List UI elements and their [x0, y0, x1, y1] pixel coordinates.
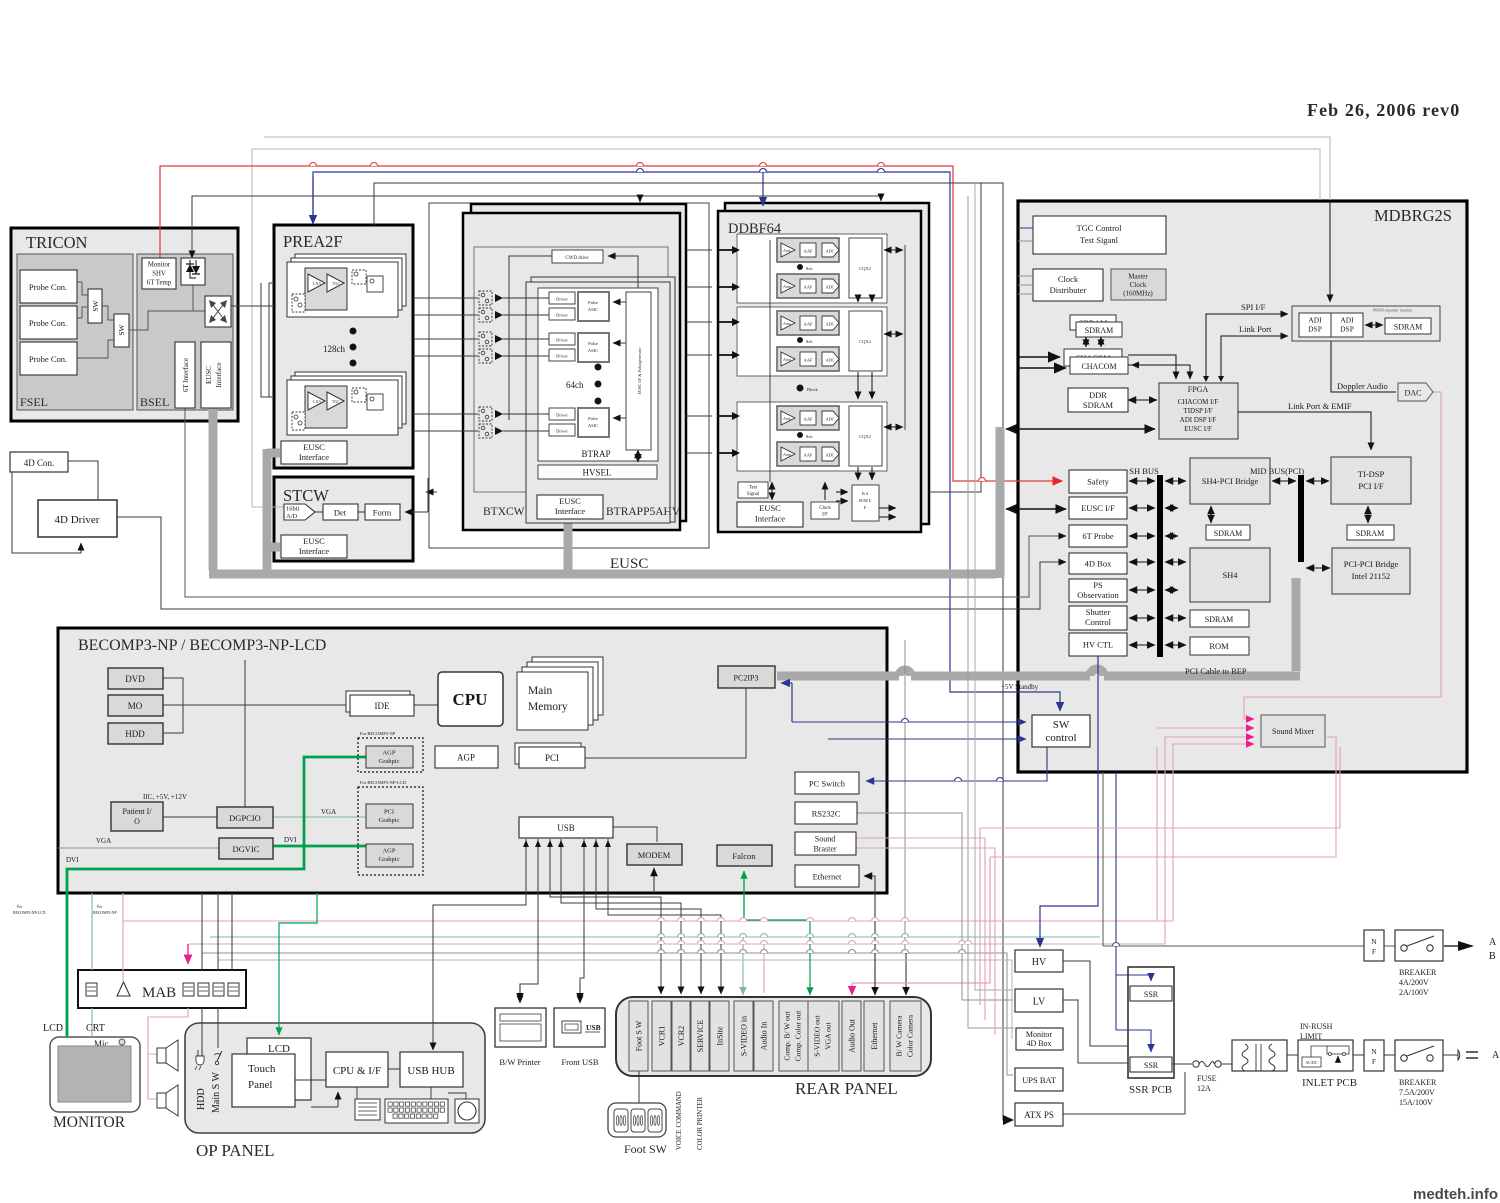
svg-text:AGP: AGP [382, 750, 395, 757]
svg-text:Monitor: Monitor [148, 262, 171, 269]
svg-text:DVI: DVI [66, 856, 79, 864]
svg-text:DGPCIO: DGPCIO [229, 813, 261, 823]
svg-text:Clock: Clock [1058, 274, 1079, 284]
svg-text:A: A [1492, 1050, 1500, 1061]
svg-text:Driver: Driver [556, 413, 568, 418]
svg-text:Test: Test [749, 486, 758, 491]
svg-text:4D Box: 4D Box [1026, 1039, 1051, 1048]
svg-text:Panel: Panel [248, 1079, 272, 1091]
svg-text:LNA: LNA [313, 281, 321, 286]
svg-text:IDE: IDE [375, 701, 390, 711]
svg-text:Link Port: Link Port [1239, 324, 1272, 334]
svg-text:UPS BAT: UPS BAT [1022, 1075, 1057, 1085]
svg-text:SSR PCB: SSR PCB [1129, 1084, 1172, 1096]
svg-text:Interface: Interface [215, 363, 223, 388]
svg-text:BREAKER: BREAKER [1399, 968, 1437, 977]
svg-text:For BECOMP3-NP: For BECOMP3-NP [360, 731, 396, 736]
svg-text:EUSC: EUSC [559, 496, 581, 506]
svg-text:COLOR PRINTER: COLOR PRINTER [697, 1096, 704, 1150]
svg-text:AC/DC: AC/DC [1305, 1060, 1318, 1065]
svg-text:A/D: A/D [286, 513, 298, 520]
svg-text:BECOMP3-NP-LCD: BECOMP3-NP-LCD [13, 911, 46, 915]
svg-text:PCI Cable to BEP: PCI Cable to BEP [1185, 666, 1247, 676]
svg-text:PCI: PCI [545, 753, 559, 763]
svg-text:+5V Standby: +5V Standby [1001, 683, 1039, 691]
svg-text:Doppler Audio: Doppler Audio [1337, 381, 1388, 391]
svg-text:PCI I/F: PCI I/F [1358, 481, 1384, 491]
svg-text:AAF: AAF [803, 285, 812, 290]
svg-text:6T Interface: 6T Interface [182, 358, 190, 392]
svg-text:EUSC: EUSC [303, 536, 325, 546]
svg-text:Clock: Clock [1130, 281, 1147, 289]
svg-text:VGA: VGA [96, 837, 111, 845]
svg-text:MID BUS(PCI): MID BUS(PCI) [1250, 466, 1304, 476]
svg-text:TRICON: TRICON [26, 233, 88, 252]
svg-text:Monitor: Monitor [1026, 1030, 1053, 1039]
svg-text:LCD: LCD [43, 1023, 63, 1034]
svg-text:PREA2F: PREA2F [283, 232, 343, 251]
svg-text:N: N [1371, 937, 1377, 946]
svg-text:TGC: TGC [332, 399, 340, 404]
svg-text:medteh.info: medteh.info [1413, 1186, 1498, 1203]
svg-text:PS: PS [1093, 580, 1103, 590]
svg-text:Probe Con.: Probe Con. [29, 318, 67, 328]
svg-text:Audio Out: Audio Out [848, 1018, 857, 1053]
svg-text:PC2IP3: PC2IP3 [734, 674, 759, 683]
svg-text:Driver: Driver [556, 297, 568, 302]
svg-text:Driver: Driver [556, 429, 568, 434]
svg-text:Pulse: Pulse [588, 341, 598, 346]
svg-text:EUSC: EUSC [205, 366, 213, 384]
svg-text:PCI: PCI [384, 809, 394, 816]
svg-text:64ch: 64ch [566, 380, 584, 390]
svg-text:Touch: Touch [248, 1063, 276, 1075]
svg-text:Main: Main [528, 685, 553, 697]
svg-text:SDRAM: SDRAM [1085, 326, 1113, 335]
svg-text:ATX PS: ATX PS [1024, 1110, 1054, 1120]
svg-text:Interface: Interface [755, 514, 785, 524]
svg-text:BECOMP3-NP: BECOMP3-NP [93, 911, 117, 915]
svg-text:CQX2: CQX2 [859, 434, 871, 439]
svg-text:ROM: ROM [1209, 641, 1229, 651]
svg-text:4A/200V: 4A/200V [1399, 978, 1429, 987]
svg-text:DAC: DAC [1405, 389, 1422, 398]
svg-text:SPI I/F: SPI I/F [1241, 302, 1266, 312]
svg-text:FUSE: FUSE [1197, 1074, 1217, 1083]
svg-text:Amp: Amp [783, 358, 791, 362]
svg-text:SW: SW [91, 299, 100, 311]
svg-text:Amp: Amp [783, 417, 791, 421]
svg-text:O: O [134, 817, 140, 826]
svg-text:Pulse: Pulse [588, 416, 598, 421]
svg-text:Ethernet: Ethernet [870, 1022, 879, 1050]
svg-text:USB HUB: USB HUB [407, 1065, 454, 1077]
svg-text:CRT: CRT [86, 1023, 105, 1034]
svg-text:MO: MO [128, 701, 143, 711]
svg-text:FPGA: FPGA [1188, 385, 1209, 394]
svg-text:EUSC: EUSC [303, 442, 325, 452]
svg-text:PCI-PCI Bridge: PCI-PCI Bridge [1344, 559, 1399, 569]
svg-text:DVD: DVD [125, 674, 145, 684]
svg-text:SH4: SH4 [1222, 570, 1238, 580]
svg-text:ADC: ADC [826, 453, 835, 458]
svg-text:Driver: Driver [556, 338, 568, 343]
svg-text:BTXCW: BTXCW [483, 506, 525, 518]
svg-text:CQX2: CQX2 [859, 339, 871, 344]
svg-text:SERVICE: SERVICE [696, 1020, 705, 1053]
svg-text:Grahpic: Grahpic [379, 856, 400, 863]
svg-text:AAF: AAF [803, 249, 812, 254]
svg-text:Ethernet: Ethernet [813, 872, 842, 882]
svg-text:EUSC I/F: EUSC I/F [1081, 503, 1115, 513]
svg-text:Foot SW: Foot SW [624, 1142, 668, 1156]
svg-text:Grahpic: Grahpic [379, 758, 400, 765]
svg-text:LCD: LCD [268, 1043, 290, 1055]
svg-text:CPU & I/F: CPU & I/F [333, 1065, 381, 1077]
svg-text:MONITOR: MONITOR [53, 1114, 126, 1131]
svg-text:Pulse: Pulse [588, 300, 598, 305]
svg-text:Probe Con.: Probe Con. [29, 282, 67, 292]
svg-text:CHACOM: CHACOM [1081, 362, 1116, 371]
svg-text:CPU: CPU [453, 690, 488, 709]
svg-text:USB: USB [586, 1023, 601, 1032]
svg-text:AGP: AGP [457, 753, 475, 763]
svg-text:OP PANEL: OP PANEL [196, 1141, 275, 1160]
svg-text:Observation: Observation [1077, 590, 1119, 600]
svg-text:Foot S W: Foot S W [635, 1020, 644, 1051]
svg-text:DDR: DDR [1089, 390, 1107, 400]
svg-text:DGVIC: DGVIC [233, 844, 260, 854]
svg-text:HVSEL: HVSEL [583, 468, 612, 478]
svg-text:Color Camera: Color Camera [906, 1014, 915, 1057]
svg-text:SDRAM: SDRAM [1214, 529, 1242, 538]
svg-text:128ch: 128ch [323, 344, 345, 354]
svg-text:VGA: VGA [321, 808, 336, 816]
svg-text:ASIC: ASIC [588, 423, 598, 428]
svg-text:DSP: DSP [1340, 325, 1354, 334]
svg-text:VOICE COMMAND: VOICE COMMAND [676, 1091, 683, 1150]
svg-text:IN-RUSH: IN-RUSH [1300, 1022, 1333, 1031]
svg-text:Front USB: Front USB [561, 1057, 598, 1067]
svg-text:ADI: ADI [1340, 316, 1354, 325]
svg-text:EUSC: EUSC [610, 556, 648, 572]
svg-text:LV: LV [1033, 997, 1046, 1008]
svg-text:16bit: 16bit [286, 506, 300, 513]
svg-text:DSP: DSP [1308, 325, 1322, 334]
svg-text:VCR2: VCR2 [677, 1026, 686, 1046]
svg-text:Feb 26, 2006 rev0: Feb 26, 2006 rev0 [1307, 100, 1460, 120]
svg-text:Signal: Signal [747, 492, 760, 497]
svg-text:Sound Mixer: Sound Mixer [1272, 727, 1314, 736]
svg-text:Amp: Amp [783, 322, 791, 326]
svg-text:S-VIDEO in: S-VIDEO in [740, 1016, 749, 1056]
svg-text:Det: Det [334, 508, 347, 518]
svg-text:ASIC: ASIC [588, 348, 598, 353]
svg-text:DVI: DVI [284, 836, 297, 844]
svg-text:Control: Control [1085, 617, 1112, 627]
svg-text:Amp: Amp [783, 285, 791, 289]
svg-text:CHACOM I/F: CHACOM I/F [1178, 398, 1219, 406]
svg-text:SH4-PCI Bridge: SH4-PCI Bridge [1202, 476, 1259, 486]
svg-text:SW: SW [1053, 719, 1070, 731]
svg-text:B/W Printer: B/W Printer [499, 1057, 540, 1067]
svg-text:Memory: Memory [528, 701, 568, 713]
svg-text:For BECOMP3-NP-LCD: For BECOMP3-NP-LCD [360, 780, 407, 785]
svg-text:AAF: AAF [803, 417, 812, 422]
svg-text:F: F [1372, 947, 1376, 956]
svg-text:BTRAPP5AHV: BTRAPP5AHV [606, 506, 681, 518]
svg-text:SSR: SSR [1144, 990, 1159, 999]
svg-text:Block: Block [807, 387, 818, 392]
svg-text:CWD drive: CWD drive [565, 256, 589, 261]
svg-text:PC Switch: PC Switch [809, 779, 846, 789]
svg-text:Falcon: Falcon [732, 851, 756, 861]
svg-text:ADI: ADI [1308, 316, 1322, 325]
svg-text:HV: HV [1032, 957, 1047, 968]
svg-text:BECOMP3-NP / BECOMP3-NP-LC: BECOMP3-NP / BECOMP3-NP-LCD [78, 637, 326, 654]
svg-text:PROM expander function: PROM expander function [1373, 309, 1412, 313]
svg-text:For: For [17, 905, 23, 909]
svg-text:12A: 12A [1197, 1084, 1211, 1093]
svg-text:6T Probe: 6T Probe [1082, 531, 1113, 541]
svg-text:TI-DSP: TI-DSP [1358, 469, 1385, 479]
svg-text:SDRAM: SDRAM [1205, 615, 1233, 624]
svg-text:6T Temp: 6T Temp [147, 280, 172, 287]
svg-text:BTRAP: BTRAP [581, 449, 610, 459]
svg-text:8ch: 8ch [806, 266, 813, 271]
svg-text:4D Box: 4D Box [1085, 559, 1112, 569]
svg-text:BSEL: BSEL [140, 395, 169, 409]
svg-text:HDD: HDD [196, 1088, 207, 1110]
svg-text:SSR: SSR [1144, 1061, 1159, 1070]
svg-text:SDRAM: SDRAM [1394, 323, 1422, 332]
svg-text:ADC: ADC [826, 417, 835, 422]
svg-text:Form: Form [373, 508, 392, 518]
svg-text:INLET PCB: INLET PCB [1302, 1077, 1357, 1089]
svg-text:BREAKER: BREAKER [1399, 1078, 1437, 1087]
svg-text:SUM I/: SUM I/ [859, 498, 873, 503]
svg-text:TGC Control: TGC Control [1076, 223, 1122, 233]
svg-text:LNA: LNA [313, 399, 321, 404]
svg-text:EUSC I/F & Pulsegenerator: EUSC I/F & Pulsegenerator [637, 347, 642, 394]
svg-text:EUSC I/F: EUSC I/F [1184, 425, 1212, 433]
svg-text:B d: B d [862, 491, 869, 496]
svg-text:Comp. Color out: Comp. Color out [794, 1010, 803, 1062]
svg-text:I/F: I/F [822, 513, 828, 518]
svg-text:Clock: Clock [819, 506, 831, 511]
svg-text:8ch: 8ch [806, 434, 813, 439]
svg-text:A: A [1489, 937, 1497, 948]
svg-text:Probe Con.: Probe Con. [29, 354, 67, 364]
svg-text:4D Driver: 4D Driver [55, 514, 100, 526]
svg-text:ADC: ADC [826, 285, 835, 290]
svg-text:EUSC: EUSC [759, 503, 781, 513]
svg-text:Driver: Driver [556, 354, 568, 359]
svg-text:Interface: Interface [555, 506, 585, 516]
svg-text:REAR PANEL: REAR PANEL [795, 1079, 898, 1098]
svg-text:Safety: Safety [1087, 477, 1109, 487]
svg-text:MAB: MAB [142, 985, 176, 1001]
svg-text:Link Port & EMIF: Link Port & EMIF [1288, 401, 1352, 411]
svg-text:AAF: AAF [803, 322, 812, 327]
svg-text:4D Con.: 4D Con. [24, 458, 55, 468]
svg-text:Test Siganl: Test Siganl [1080, 235, 1119, 245]
svg-text:SHV: SHV [152, 271, 166, 278]
svg-text:VCR1: VCR1 [658, 1026, 667, 1046]
svg-text:Interface: Interface [299, 452, 329, 462]
svg-text:Master: Master [1128, 273, 1148, 281]
svg-text:MDBRG2S: MDBRG2S [1374, 206, 1452, 225]
svg-text:TIDSP I/F: TIDSP I/F [1183, 407, 1212, 415]
svg-text:S-VIDEO out: S-VIDEO out [813, 1014, 822, 1056]
svg-text:SH BUS: SH BUS [1129, 466, 1159, 476]
svg-text:For: For [97, 905, 103, 909]
svg-text:Audio In: Audio In [760, 1022, 769, 1051]
svg-text:ADI DSP I/F: ADI DSP I/F [1180, 416, 1217, 424]
svg-text:ADC: ADC [826, 358, 835, 363]
svg-text:B: B [1489, 951, 1496, 962]
svg-text:RS232C: RS232C [812, 809, 841, 819]
svg-text:Driver: Driver [556, 313, 568, 318]
svg-text:15A/100V: 15A/100V [1399, 1098, 1433, 1107]
svg-text:Comp. B/ W out: Comp. B/ W out [783, 1010, 792, 1060]
svg-text:FSEL: FSEL [20, 395, 48, 409]
svg-text:Main S W: Main S W [211, 1072, 222, 1113]
svg-text:Shutter: Shutter [1086, 607, 1111, 617]
svg-text:AAF: AAF [803, 358, 812, 363]
svg-text:SDRAM: SDRAM [1356, 529, 1384, 538]
svg-text:Interface: Interface [299, 546, 329, 556]
svg-text:7.5A/200V: 7.5A/200V [1399, 1088, 1435, 1097]
svg-text:Amp: Amp [783, 453, 791, 457]
svg-text:Sound: Sound [815, 835, 835, 844]
svg-text:(160MHz): (160MHz) [1123, 290, 1153, 298]
svg-text:HV CTL: HV CTL [1083, 640, 1113, 650]
svg-text:USB: USB [557, 823, 575, 833]
svg-text:HDD: HDD [125, 729, 145, 739]
svg-text:Patient I/: Patient I/ [122, 807, 152, 816]
svg-text:ASIC: ASIC [588, 307, 598, 312]
svg-text:F: F [1372, 1057, 1376, 1066]
svg-text:B/ W Camera: B/ W Camera [895, 1015, 904, 1057]
svg-text:MODEM: MODEM [638, 850, 671, 860]
svg-text:AAF: AAF [803, 453, 812, 458]
svg-text:Braster: Braster [813, 845, 836, 854]
svg-text:IIC, +5V, +12V: IIC, +5V, +12V [143, 793, 187, 801]
svg-text:control: control [1045, 732, 1076, 744]
svg-text:InSite: InSite [716, 1026, 725, 1046]
svg-text:AGP: AGP [382, 848, 395, 855]
svg-text:Amp: Amp [783, 249, 791, 253]
svg-text:CQX2: CQX2 [859, 266, 871, 271]
svg-text:ADC: ADC [826, 249, 835, 254]
svg-text:SW: SW [117, 323, 126, 335]
svg-text:Distributer: Distributer [1050, 285, 1087, 295]
svg-text:TGC: TGC [332, 281, 340, 286]
svg-text:8ch: 8ch [806, 339, 813, 344]
svg-text:N: N [1371, 1047, 1377, 1056]
svg-text:SDRAM: SDRAM [1083, 400, 1114, 410]
svg-text:Intel 21152: Intel 21152 [1352, 571, 1391, 581]
svg-text:ADC: ADC [826, 322, 835, 327]
svg-text:2A/100V: 2A/100V [1399, 988, 1429, 997]
svg-text:VGA out: VGA out [824, 1021, 833, 1049]
svg-text:Grahpic: Grahpic [379, 817, 400, 824]
svg-text:STCW: STCW [283, 486, 329, 505]
